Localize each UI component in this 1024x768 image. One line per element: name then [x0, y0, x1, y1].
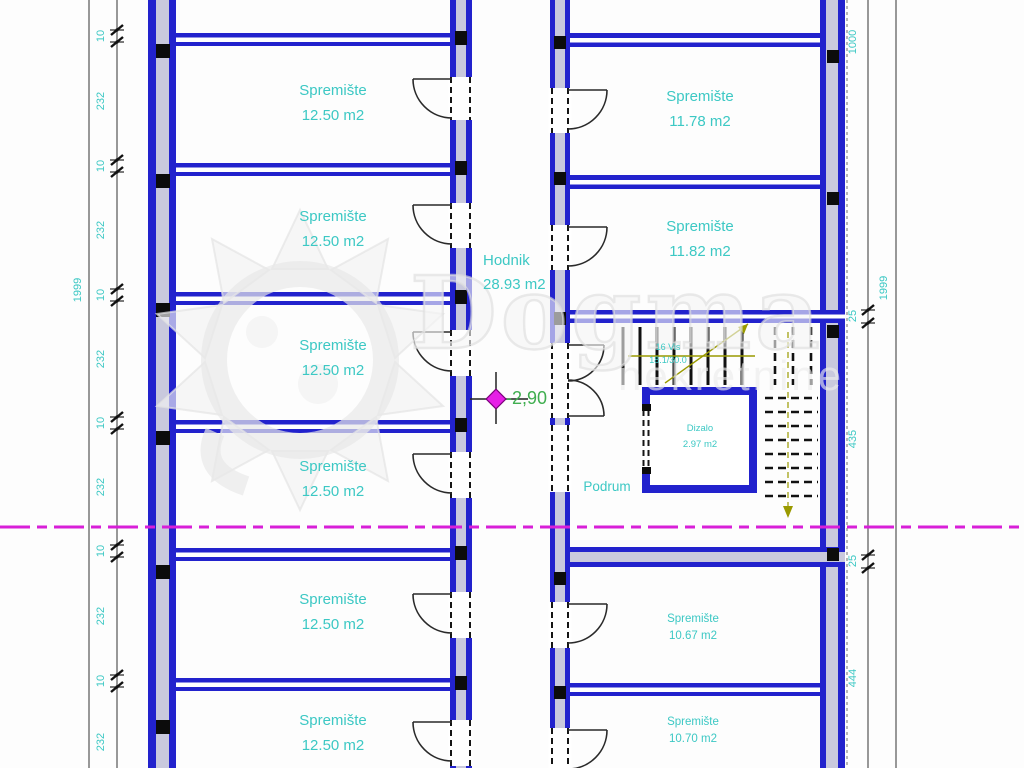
room-label-left-5: Spremište12.50 m2 — [299, 591, 367, 633]
svg-text:10.67 m2: 10.67 m2 — [669, 630, 717, 642]
door-left-room-5 — [413, 592, 474, 638]
svg-text:1000: 1000 — [847, 30, 859, 54]
dimension-chain-left: 1999 10 232 10 232 10 232 10 232 10 232 … — [72, 0, 124, 768]
svg-text:12.50 m2: 12.50 m2 — [302, 107, 365, 124]
svg-text:Spremište: Spremište — [299, 82, 367, 99]
svg-text:Spremište: Spremište — [666, 218, 734, 235]
svg-text:12.50 m2: 12.50 m2 — [302, 737, 365, 754]
svg-text:Spremište: Spremište — [299, 591, 367, 608]
understair-opening — [549, 425, 572, 492]
floor-plan-canvas: Dogma nekretnine Spremište12.50 m2 Sprem… — [0, 0, 1024, 768]
floor-plan-page: Dogma nekretnine Spremište12.50 m2 Sprem… — [0, 0, 1024, 768]
svg-text:16 Vis: 16 Vis — [656, 342, 681, 352]
svg-text:28.93 m2: 28.93 m2 — [483, 276, 546, 293]
svg-text:Spremište: Spremište — [299, 712, 367, 729]
svg-text:10.70 m2: 10.70 m2 — [669, 733, 717, 745]
door-left-room-2 — [413, 203, 474, 248]
door-left-room-4 — [413, 452, 474, 498]
svg-text:Spremište: Spremište — [299, 337, 367, 354]
svg-text:10: 10 — [95, 30, 107, 42]
svg-text:10: 10 — [95, 675, 107, 687]
svg-text:Spremište: Spremište — [667, 716, 719, 728]
svg-text:232: 232 — [95, 350, 107, 368]
svg-text:232: 232 — [95, 478, 107, 496]
svg-text:10: 10 — [95, 417, 107, 429]
room-label-right-4: Spremište10.70 m2 — [667, 716, 719, 745]
room-label-right-1: Spremište11.78 m2 — [666, 88, 734, 130]
level-marker: -2,90 — [470, 372, 547, 424]
door-right-room-4 — [549, 728, 608, 768]
room-label-right-2: Spremište11.82 m2 — [666, 218, 734, 260]
door-left-room-6 — [413, 720, 474, 766]
svg-text:2.97 m2: 2.97 m2 — [683, 439, 717, 450]
svg-text:232: 232 — [95, 733, 107, 751]
svg-text:435: 435 — [847, 430, 859, 448]
svg-text:Spremište: Spremište — [299, 208, 367, 225]
level-value: -2,90 — [506, 388, 547, 408]
svg-text:12.50 m2: 12.50 m2 — [302, 483, 365, 500]
svg-text:18.1/30.0: 18.1/30.0 — [649, 355, 687, 365]
svg-text:12.50 m2: 12.50 m2 — [302, 616, 365, 633]
dim-right-total: 1999 — [878, 276, 890, 300]
room-label-right-3: Spremište10.67 m2 — [667, 613, 719, 642]
dimension-chain-right: 1999 1000 25 435 25 444 — [847, 0, 896, 768]
svg-text:11.78 m2: 11.78 m2 — [669, 113, 730, 130]
svg-text:444: 444 — [847, 669, 859, 687]
svg-text:25: 25 — [847, 310, 859, 322]
level-marker-point — [486, 389, 506, 409]
svg-text:10: 10 — [95, 289, 107, 301]
svg-text:10: 10 — [95, 545, 107, 557]
svg-text:Dizalo: Dizalo — [687, 423, 713, 434]
svg-text:25: 25 — [847, 555, 859, 567]
door-right-room-1 — [549, 88, 608, 133]
svg-text:10: 10 — [95, 160, 107, 172]
svg-text:11.82 m2: 11.82 m2 — [669, 243, 730, 260]
svg-text:232: 232 — [95, 607, 107, 625]
svg-text:Spremište: Spremište — [666, 88, 734, 105]
room-label-left-6: Spremište12.50 m2 — [299, 712, 367, 754]
dim-left-total: 1999 — [72, 278, 84, 302]
svg-text:Hodnik: Hodnik — [483, 252, 530, 269]
svg-text:Spremište: Spremište — [667, 613, 719, 625]
svg-text:12.50 m2: 12.50 m2 — [302, 233, 365, 250]
svg-text:Spremište: Spremište — [299, 458, 367, 475]
room-label-left-3: Spremište12.50 m2 — [299, 337, 367, 379]
svg-text:232: 232 — [95, 92, 107, 110]
svg-text:232: 232 — [95, 221, 107, 239]
door-right-room-3 — [549, 602, 608, 648]
room-label-left-1: Spremište12.50 m2 — [299, 82, 367, 124]
door-left-room-1 — [413, 77, 474, 120]
basement-label: Podrum — [583, 479, 630, 494]
svg-text:12.50 m2: 12.50 m2 — [302, 362, 365, 379]
